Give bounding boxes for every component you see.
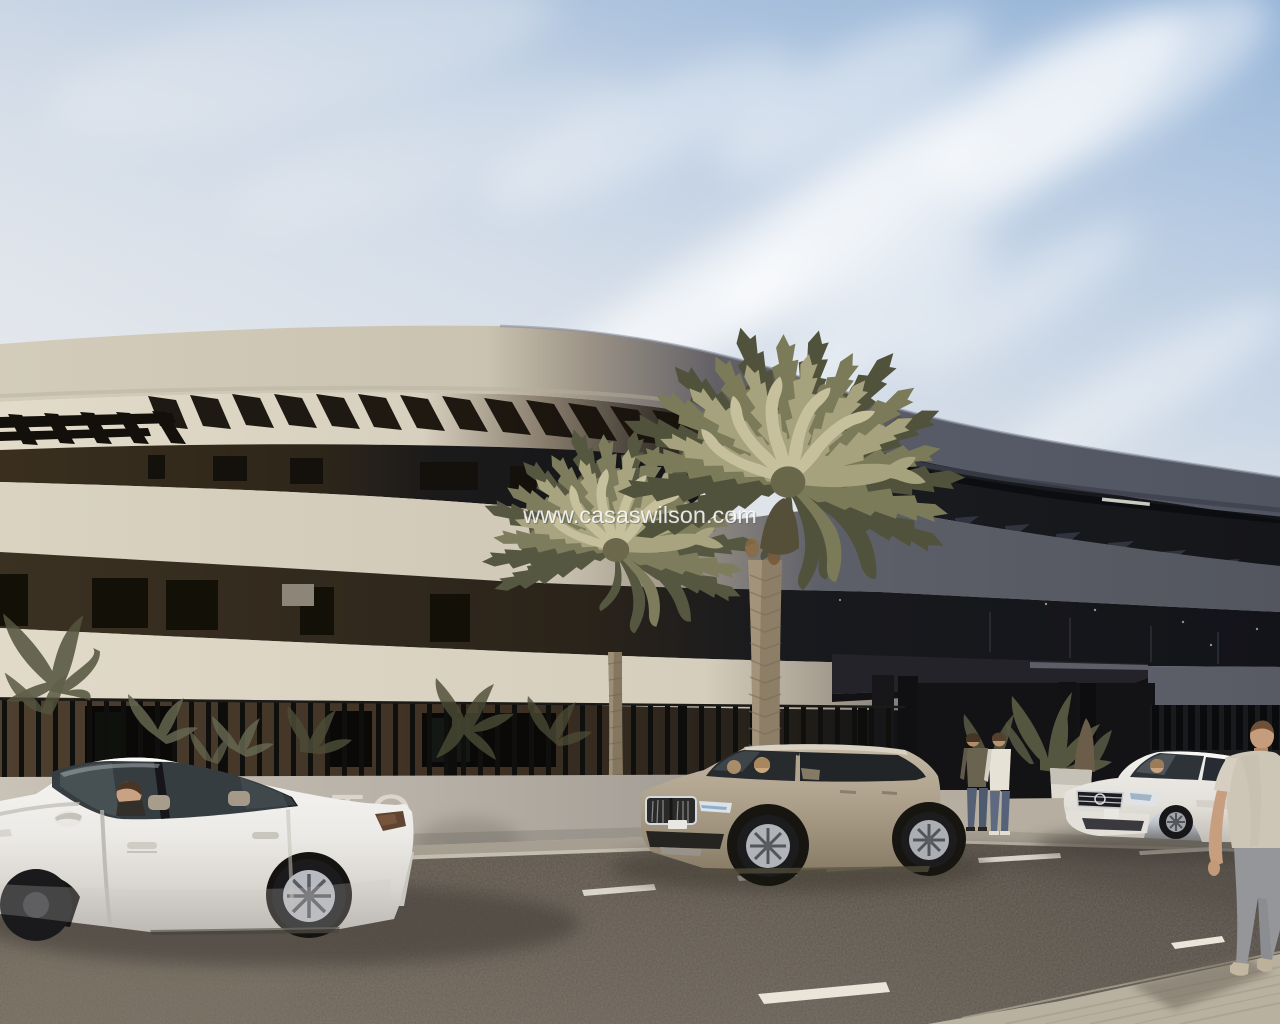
svg-text:www.casaswilson.com: www.casaswilson.com (522, 502, 757, 528)
